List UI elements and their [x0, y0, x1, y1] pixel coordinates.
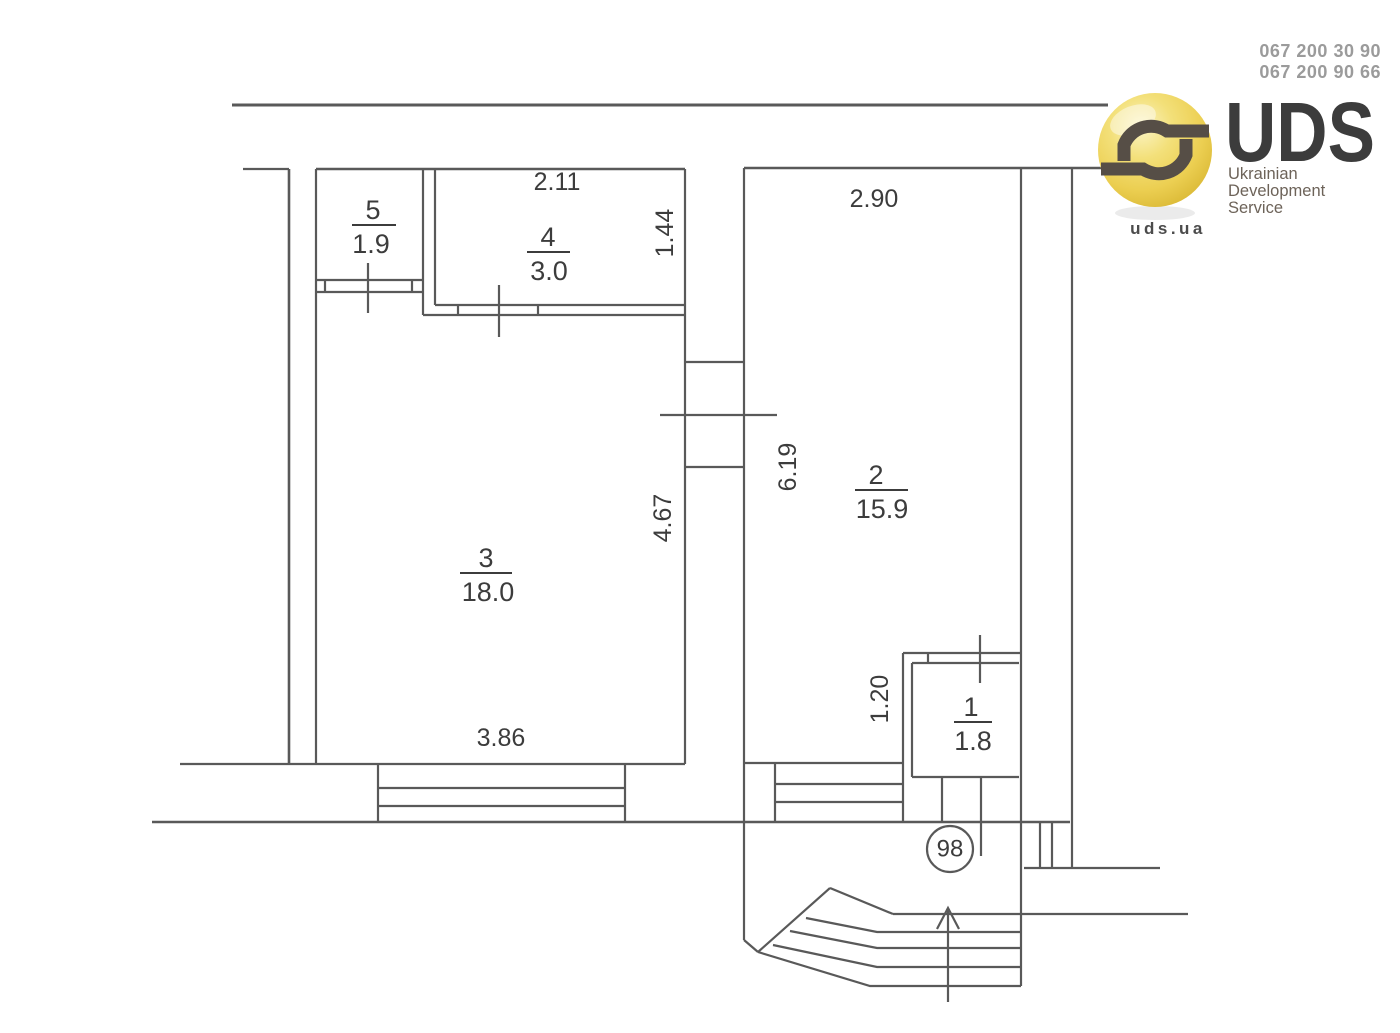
- uds-logo: UDS Ukrainian Development Service uds.ua: [1098, 85, 1375, 238]
- room1-number: 1: [963, 692, 978, 722]
- phone-number-2: 067 200 90 66: [1259, 62, 1381, 82]
- room5-area: 1.9: [352, 229, 390, 259]
- room-labels: 5 1.9 4 3.0 3 18.0 2 15.9 1 1.8: [352, 195, 992, 756]
- floor-plan-canvas: 98 5 1.9 4 3.0 3 18.0 2 15.9 1 1.8 2.11 …: [0, 0, 1400, 1033]
- dim-top-depth: 1.44: [651, 209, 679, 258]
- room1-area: 1.8: [954, 726, 992, 756]
- stair-left-corner: [744, 940, 758, 952]
- stair-step-2: [806, 918, 1021, 932]
- room4-area: 3.0: [530, 256, 568, 286]
- floor-plan-page: 98 5 1.9 4 3.0 3 18.0 2 15.9 1 1.8 2.11 …: [0, 0, 1400, 1033]
- room3-number: 3: [478, 543, 493, 573]
- dim-room2-width: 2.90: [850, 185, 899, 213]
- stair-step-3: [790, 931, 1021, 948]
- logo-ball-shadow: [1115, 206, 1195, 220]
- window-bays: [378, 763, 903, 822]
- stair-bottom-edge: [758, 952, 1021, 986]
- logo-tagline-line1: Ukrainian: [1228, 165, 1298, 183]
- phone-number-1: 067 200 30 90: [1259, 41, 1381, 61]
- logo-website: uds.ua: [1130, 219, 1206, 238]
- room4-number: 4: [540, 222, 555, 252]
- staircase: [744, 888, 1021, 1002]
- stair-top-flank: [830, 888, 893, 914]
- dim-niche-height: 1.20: [866, 675, 894, 724]
- room2-area: 15.9: [856, 494, 909, 524]
- room3-area: 18.0: [462, 577, 515, 607]
- walls: [180, 168, 1102, 986]
- dim-top-width: 2.11: [534, 168, 581, 196]
- logo-tagline-line3: Service: [1228, 199, 1283, 217]
- logo-tagline-line2: Development: [1228, 182, 1326, 200]
- logo-ball-icon: [1098, 93, 1212, 207]
- room5-number: 5: [365, 195, 380, 225]
- dim-room3-height: 4.67: [649, 494, 677, 543]
- apartment-number: 98: [937, 836, 964, 863]
- contact-phones: 067 200 30 90 067 200 90 66: [1259, 41, 1381, 82]
- dim-room2-height: 6.19: [774, 443, 802, 492]
- dim-room3-width: 3.86: [477, 724, 526, 752]
- room2-number: 2: [868, 460, 883, 490]
- apartment-number-badge: 98: [927, 826, 973, 872]
